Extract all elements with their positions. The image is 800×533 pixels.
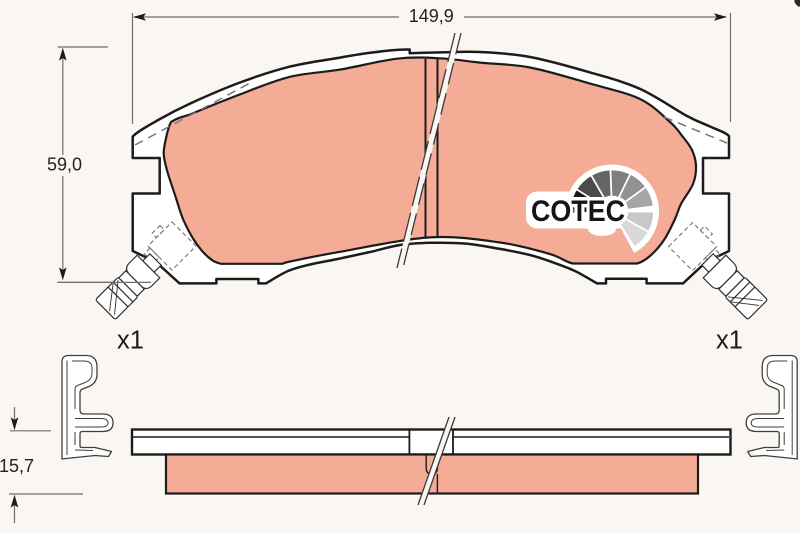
svg-text:59,0: 59,0	[47, 155, 82, 175]
svg-text:x1: x1	[716, 327, 743, 355]
svg-text:COTEC: COTEC	[531, 195, 625, 228]
svg-text:15,7: 15,7	[0, 456, 34, 476]
svg-text:x1: x1	[117, 327, 144, 355]
svg-text:149,9: 149,9	[409, 6, 454, 26]
